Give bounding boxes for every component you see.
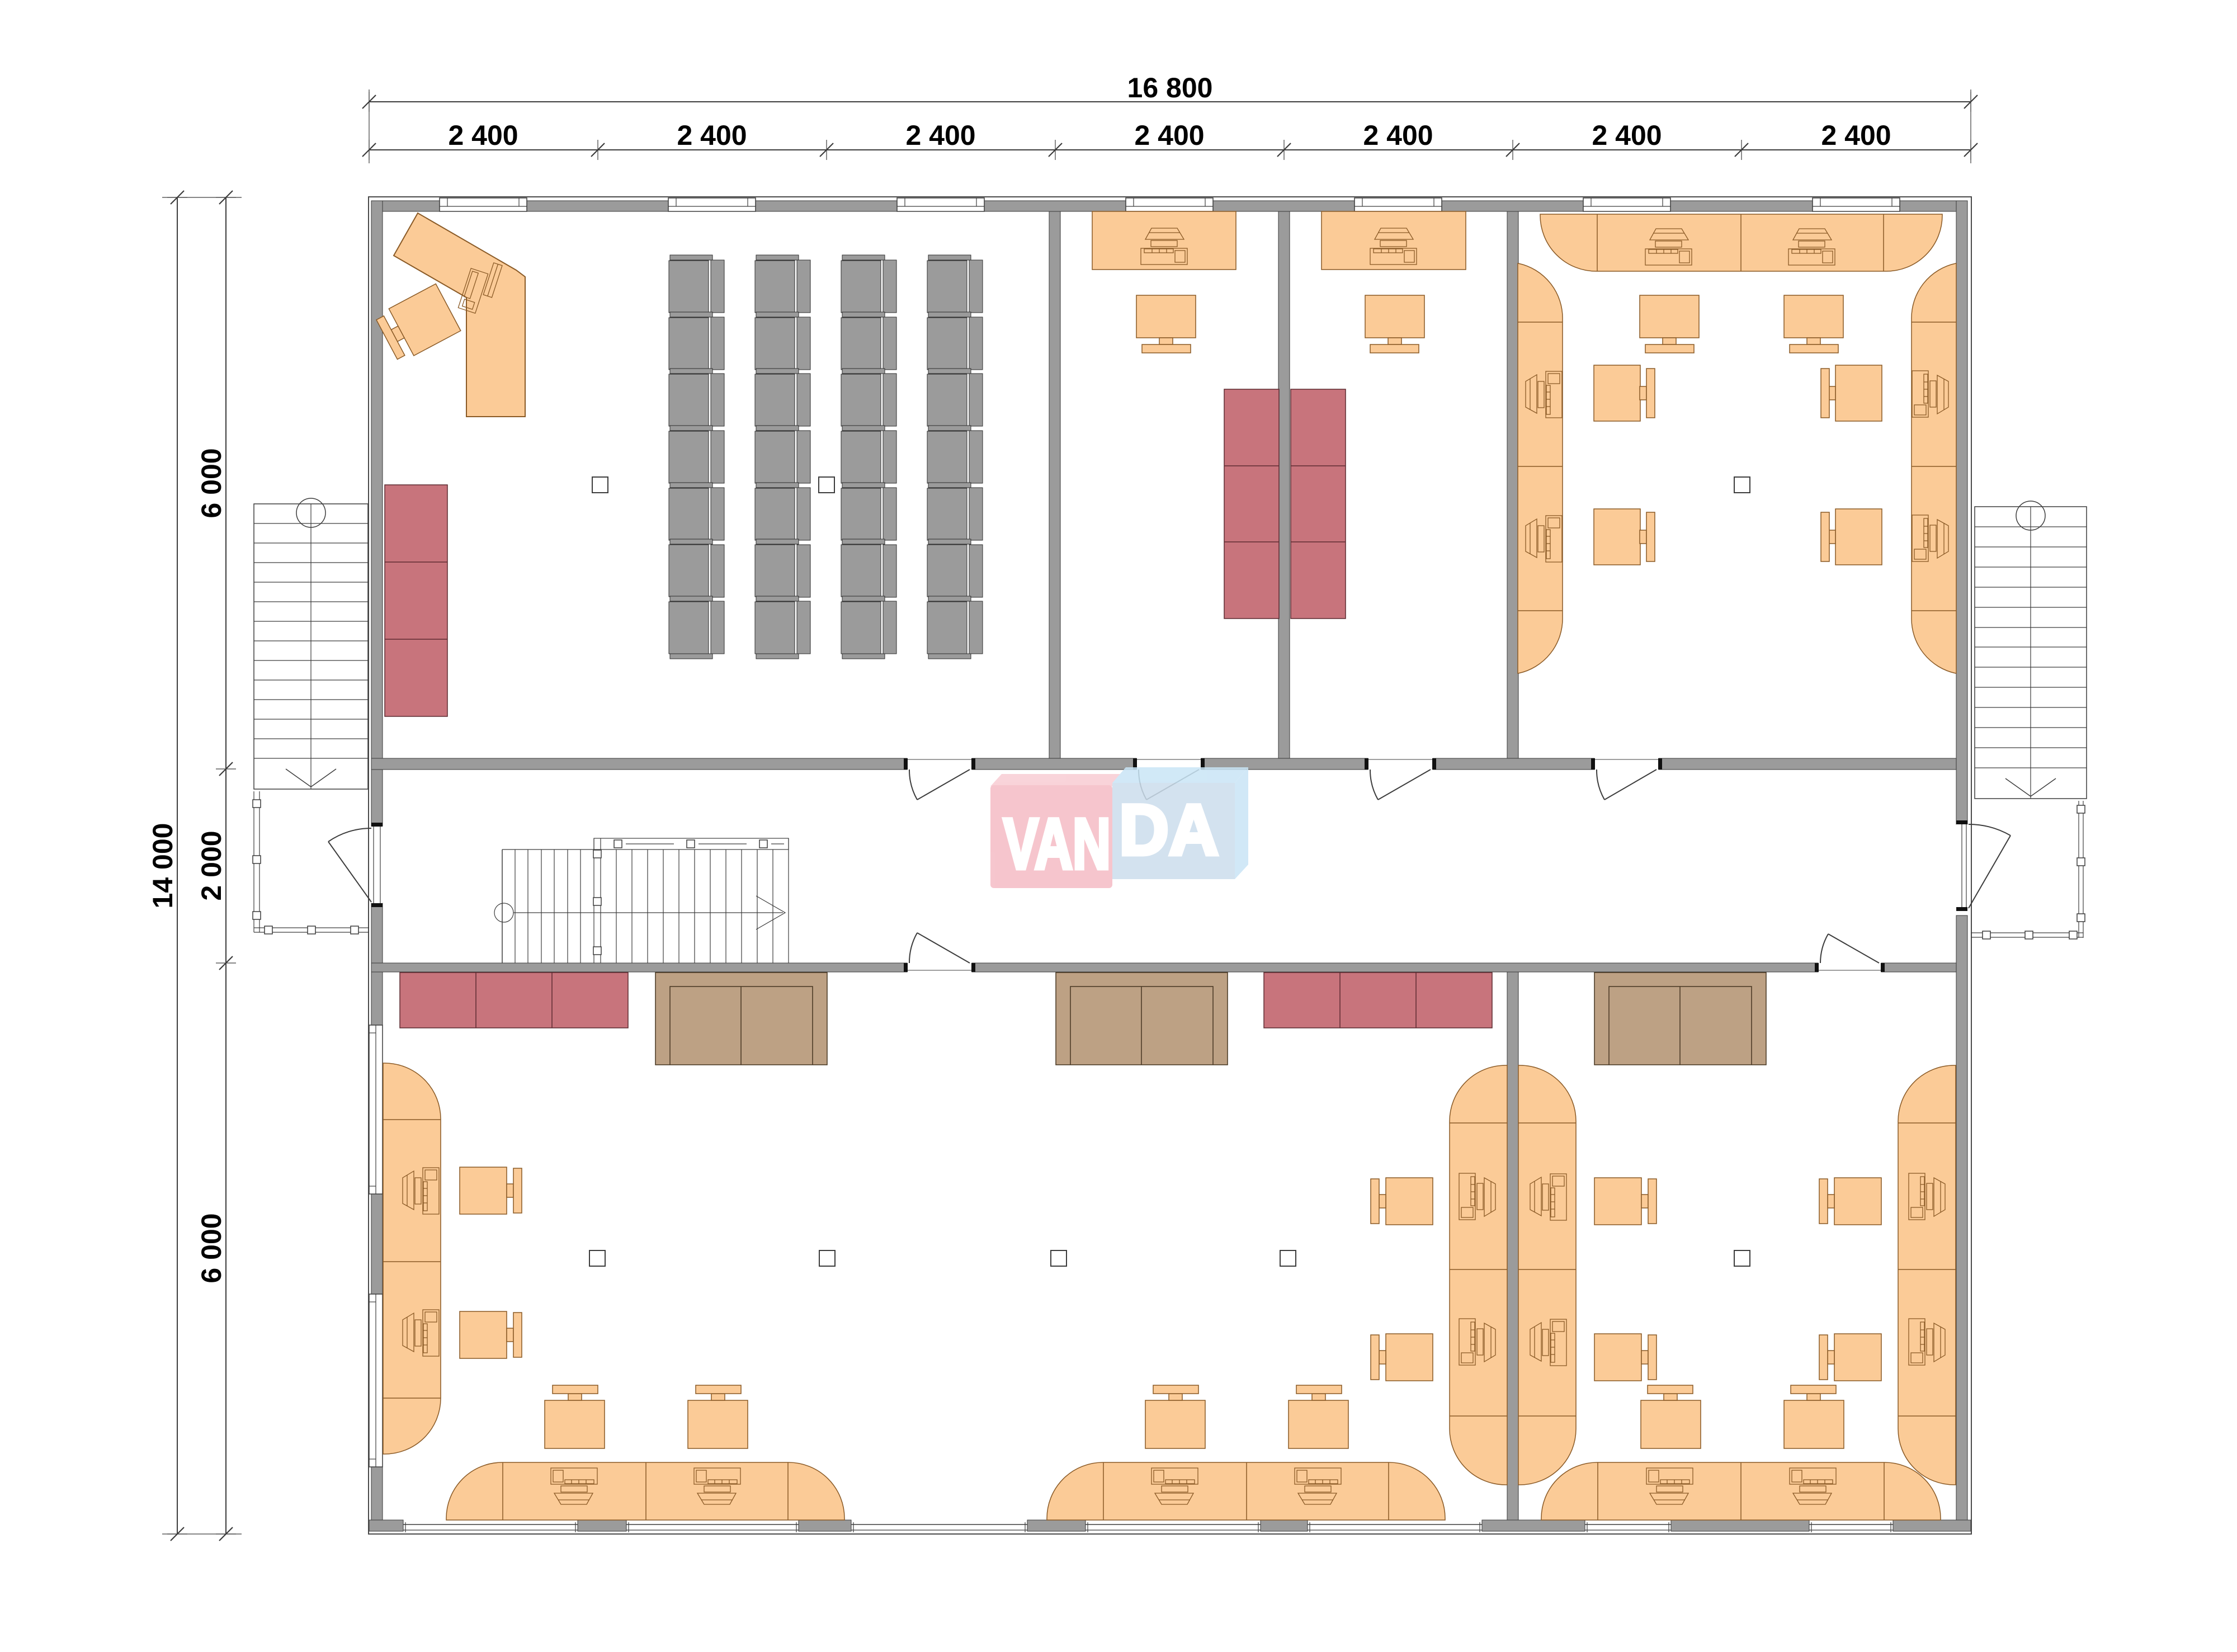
- svg-text:2 400: 2 400: [1821, 120, 1891, 151]
- svg-text:14 000: 14 000: [147, 823, 178, 909]
- svg-text:2 400: 2 400: [448, 120, 518, 151]
- svg-text:6 000: 6 000: [196, 1213, 227, 1283]
- svg-text:DA: DA: [1119, 790, 1219, 870]
- svg-text:2 400: 2 400: [1134, 120, 1204, 151]
- svg-text:2 400: 2 400: [677, 120, 747, 151]
- svg-text:6 000: 6 000: [196, 448, 227, 518]
- svg-text:2 400: 2 400: [1363, 120, 1433, 151]
- svg-text:2 400: 2 400: [905, 120, 975, 151]
- svg-text:16 800: 16 800: [1127, 72, 1213, 103]
- svg-text:2 000: 2 000: [196, 830, 227, 900]
- svg-text:VAN: VAN: [1003, 804, 1111, 884]
- svg-text:2 400: 2 400: [1592, 120, 1662, 151]
